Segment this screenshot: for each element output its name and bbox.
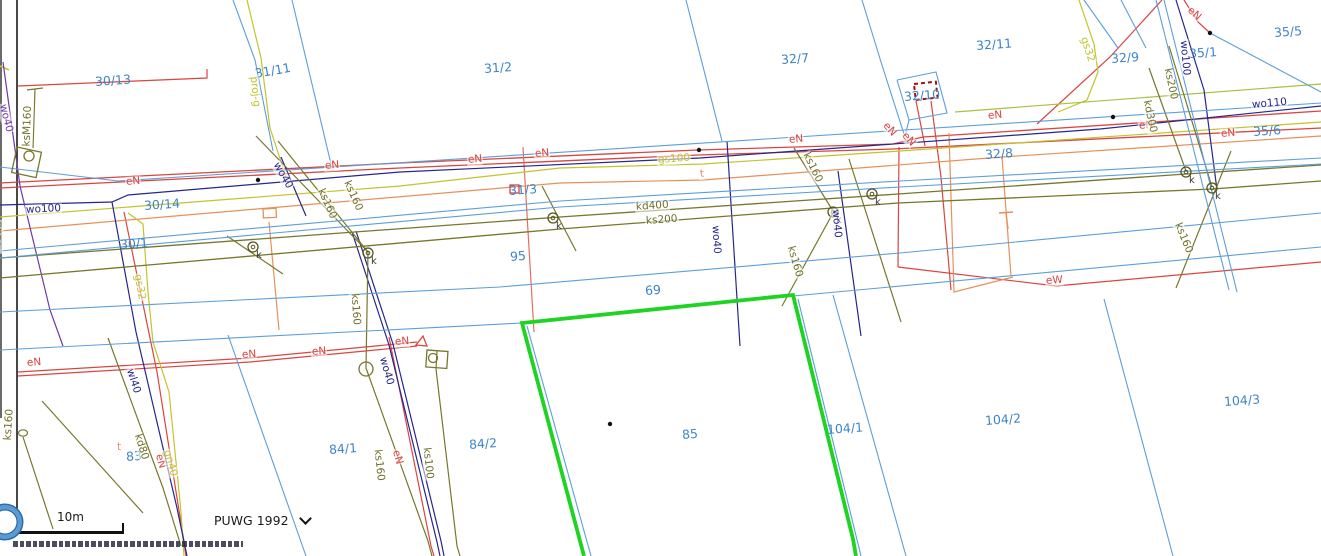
sewer-diag-bl2 xyxy=(42,401,143,513)
boundary-30-31-b xyxy=(292,0,331,164)
sewer-ks160-c-up xyxy=(794,148,833,211)
scale-bar-line xyxy=(15,523,124,534)
gas-yg-right xyxy=(955,84,1321,112)
point-marker-0 xyxy=(256,178,260,182)
attribution-text xyxy=(13,541,243,547)
boundary-31-2-east xyxy=(686,0,722,141)
power-drop-center xyxy=(389,337,434,556)
boundary-104-1-2 xyxy=(833,295,906,556)
power-line-eW xyxy=(898,262,1321,286)
telecom-t-main xyxy=(0,136,1321,231)
boundary-85-east xyxy=(798,299,861,556)
boundary-32-10-quad xyxy=(897,72,947,120)
line-95-vert xyxy=(523,147,534,332)
manhole-icon-4 xyxy=(867,189,877,199)
sewer-ks160-d2 xyxy=(278,141,368,252)
selected-parcel-outline xyxy=(522,295,856,556)
square-symbol-3 xyxy=(263,208,276,218)
telecom-symbol-v xyxy=(1006,213,1008,229)
power-branch-32-9 xyxy=(1037,0,1162,124)
map-lines-layer xyxy=(0,0,1321,556)
gas-proj-g xyxy=(247,0,289,186)
water-wo40-drop-a xyxy=(352,232,440,556)
chevron-down-icon xyxy=(299,512,312,525)
water-wo40-mid xyxy=(727,141,740,346)
power-line-30-13 xyxy=(18,69,207,86)
water-wo100-main xyxy=(0,106,1321,205)
gas-gs32-ne xyxy=(1058,0,1098,112)
crs-selector-label: PUWG 1992 xyxy=(214,513,289,528)
power-line-eN-a xyxy=(0,111,1321,183)
gas-gs100-main xyxy=(0,122,1321,217)
boundary-32-7-east xyxy=(862,0,904,134)
water-wo40-right xyxy=(838,171,861,336)
point-marker-3 xyxy=(1208,31,1212,35)
manhole-icon-inner-0 xyxy=(251,245,255,249)
boundary-mid-a xyxy=(0,158,1321,251)
boundary-35-5 xyxy=(1210,33,1321,92)
sewer-ks160-drop xyxy=(366,252,432,556)
boundary-32-10-spur xyxy=(905,120,909,136)
point-marker-1 xyxy=(697,148,701,152)
square-symbol-4 xyxy=(914,82,938,100)
boundary-low-a xyxy=(0,213,1321,312)
triangle-symbol-0 xyxy=(416,336,427,346)
scale-bar-label: 10m xyxy=(57,510,84,524)
sewer-ksM160-v xyxy=(33,89,35,148)
circle-symbol-1 xyxy=(24,151,34,161)
ellipse-symbol-0 xyxy=(19,430,28,436)
power-drop-32-10b xyxy=(931,101,951,290)
map-viewport[interactable]: kkkkkkk30/1331/1131/232/732/1132/1032/93… xyxy=(0,0,1321,556)
point-marker-2 xyxy=(1111,115,1115,119)
point-marker-4 xyxy=(608,422,612,426)
boundary-32-9 xyxy=(1084,0,1118,48)
boundary-85-west xyxy=(527,326,591,556)
power-left-b xyxy=(18,346,417,376)
manhole-icon-0 xyxy=(248,242,258,252)
sewer-kd400-main xyxy=(0,165,1321,258)
boundary-low-b xyxy=(0,247,1321,350)
power-drop-32-10a xyxy=(916,101,925,146)
scale-bar: 10m xyxy=(15,510,125,532)
power-curve-ne xyxy=(1184,0,1210,33)
sewer-diag-253 xyxy=(227,236,283,274)
crs-selector[interactable]: PUWG 1992 xyxy=(214,509,310,531)
boundary-104-2-3 xyxy=(1104,299,1173,556)
telecom-symbol-h xyxy=(999,212,1013,213)
sewer-ks100 xyxy=(436,351,460,556)
